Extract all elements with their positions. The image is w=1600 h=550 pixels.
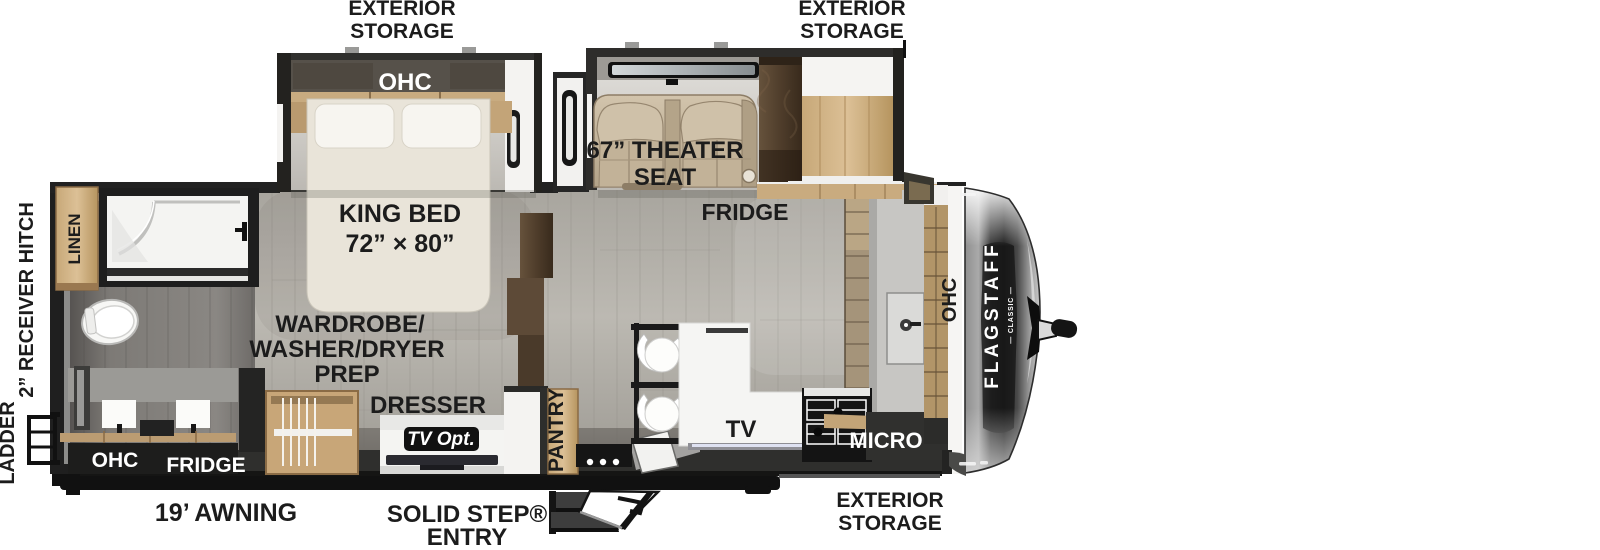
svg-text:67” THEATER: 67” THEATER — [587, 137, 744, 164]
svg-text:LINEN: LINEN — [65, 214, 84, 265]
svg-text:OHC: OHC — [939, 278, 961, 322]
svg-text:WARDROBE/: WARDROBE/ — [275, 311, 425, 338]
svg-text:TV: TV — [726, 416, 757, 443]
svg-text:DRESSER: DRESSER — [370, 392, 486, 419]
svg-text:PREP: PREP — [314, 361, 379, 388]
svg-text:WASHER/DRYER: WASHER/DRYER — [249, 336, 444, 363]
svg-text:FRIDGE: FRIDGE — [166, 454, 245, 477]
svg-text:LADDER: LADDER — [0, 401, 19, 485]
svg-text:MICRO: MICRO — [849, 428, 922, 453]
svg-text:STORAGE: STORAGE — [800, 20, 903, 43]
svg-text:EXTERIOR: EXTERIOR — [836, 489, 943, 512]
svg-text:2” RECEIVER HITCH: 2” RECEIVER HITCH — [16, 202, 38, 398]
svg-text:PANTRY: PANTRY — [545, 388, 568, 472]
svg-text:FRIDGE: FRIDGE — [702, 199, 789, 225]
svg-text:— CLASSIC —: — CLASSIC — — [1008, 286, 1015, 343]
svg-text:EXTERIOR: EXTERIOR — [798, 0, 905, 20]
svg-text:19’ AWNING: 19’ AWNING — [155, 499, 297, 527]
svg-text:FLAGSTAFF: FLAGSTAFF — [982, 241, 1003, 389]
svg-text:STORAGE: STORAGE — [838, 512, 941, 535]
svg-text:TV Opt.: TV Opt. — [407, 429, 475, 450]
svg-text:SEAT: SEAT — [634, 164, 697, 191]
svg-text:EXTERIOR: EXTERIOR — [348, 0, 455, 20]
svg-text:STORAGE: STORAGE — [350, 20, 453, 43]
svg-text:KING BED: KING BED — [339, 200, 461, 228]
svg-text:OHC: OHC — [92, 449, 139, 472]
svg-text:ENTRY: ENTRY — [427, 524, 507, 550]
svg-text:72” × 80”: 72” × 80” — [345, 230, 454, 258]
svg-text:OHC: OHC — [378, 69, 431, 96]
